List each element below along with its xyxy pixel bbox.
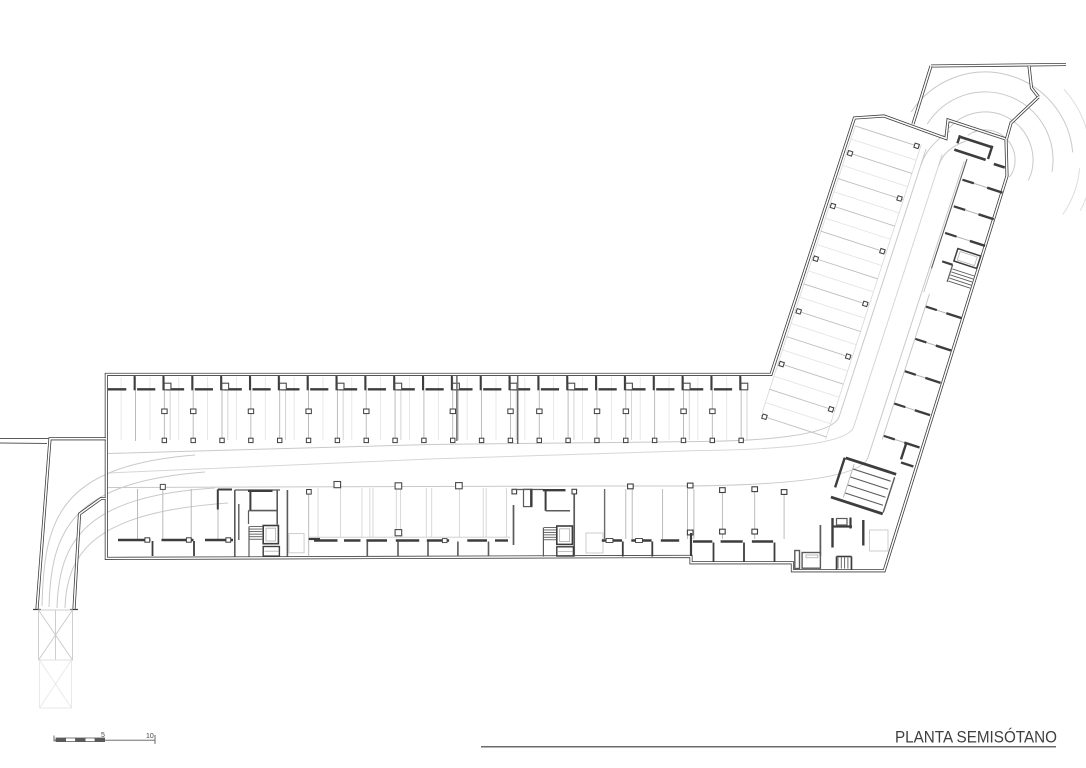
- svg-text:PLANTA SEMISÓTANO: PLANTA SEMISÓTANO: [895, 728, 1057, 747]
- svg-text:10: 10: [146, 733, 154, 740]
- svg-text:5: 5: [101, 732, 105, 739]
